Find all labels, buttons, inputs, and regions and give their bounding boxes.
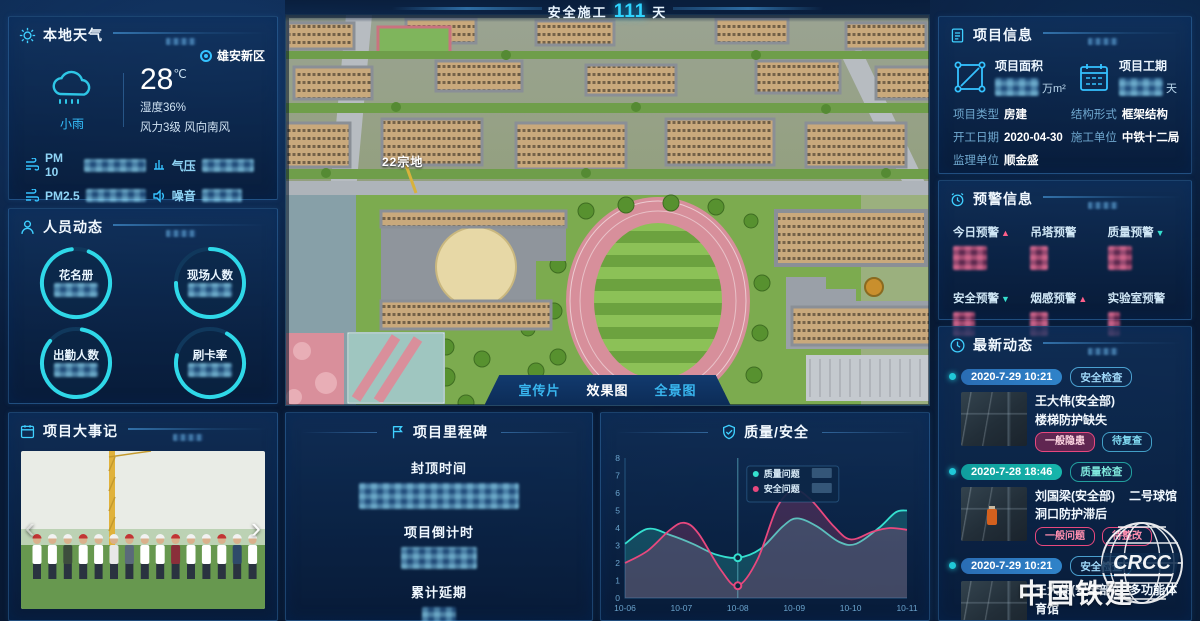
- warning-crane: 吊塔预警: [1030, 223, 1103, 275]
- quality-safety-panel: 质量/安全 01234567810-0610-0710-0810-0910-10…: [600, 412, 930, 621]
- svg-text:5: 5: [615, 506, 620, 516]
- carousel-prev-button[interactable]: ‹: [25, 514, 35, 544]
- air-waves-icon: [25, 189, 39, 203]
- svg-text:4: 4: [615, 523, 620, 533]
- news-item[interactable]: 2020-7-29 10:21 安全检查 王大伟(安全部)多功能体育馆 楼梯防护…: [947, 552, 1185, 621]
- news-issue: 洞口防护滞后: [1035, 505, 1177, 524]
- redacted-value: [953, 246, 987, 270]
- redacted-value: [1119, 78, 1163, 96]
- speaker-icon: [152, 189, 166, 203]
- redacted-value: [1030, 246, 1048, 270]
- calendar-note-icon: [19, 423, 36, 440]
- ring-swipe-rate: 刷卡率: [168, 325, 252, 399]
- news-location: 二号球馆: [1129, 489, 1177, 503]
- quality-safety-chart: 01234567810-0610-0710-0810-0910-1010-11质…: [601, 446, 921, 621]
- deco-mosaic: [166, 230, 196, 237]
- banner-suffix: 天: [652, 2, 667, 21]
- news-status-tag: 待复查: [1102, 432, 1152, 452]
- redacted-value: [188, 363, 232, 377]
- gauge-icon: [152, 158, 166, 172]
- svg-text:8: 8: [615, 453, 620, 463]
- clock-icon: [949, 337, 966, 354]
- weather-condition: 小雨: [37, 115, 107, 132]
- region-label: 雄安新区: [217, 47, 265, 64]
- redacted-value: [86, 189, 146, 202]
- divider: [123, 73, 124, 127]
- metric-pm25: PM2.5: [25, 187, 146, 204]
- document-icon: [949, 27, 966, 44]
- news-photo: [961, 581, 1027, 621]
- ring-onsite: 现场人数: [168, 245, 252, 319]
- news-status-tag: 一般隐患: [1035, 432, 1095, 452]
- svg-text:质量问题: 质量问题: [764, 468, 801, 479]
- warnings-panel: 预警信息 今日预警▲ 吊塔预警 质量预警▼ 安全预警▼ 烟感预警▲ 实验室预警: [938, 180, 1192, 320]
- news-issue: 楼梯防护缺失: [1035, 411, 1152, 430]
- alarm-icon: [949, 191, 966, 208]
- carousel-next-button[interactable]: ›: [251, 514, 261, 544]
- news-photo: [961, 487, 1027, 541]
- svg-text:10-06: 10-06: [614, 603, 636, 613]
- milestone-label: 累计延期: [286, 582, 592, 601]
- news-date-badge: 2020-7-28 18:46: [961, 464, 1062, 480]
- deco-mosaic: [1088, 202, 1118, 209]
- wind: 风力3级 风向南风: [140, 119, 230, 135]
- tab-promo-video[interactable]: 宣传片: [518, 380, 560, 399]
- region-button[interactable]: 雄安新区: [200, 47, 265, 64]
- calendar-icon: [1077, 60, 1111, 94]
- news-type-tag: 安全检查: [1070, 367, 1132, 387]
- panel-title: 项目里程碑: [413, 422, 488, 442]
- group-photo: [21, 451, 265, 609]
- news-status-tag: 一般问题: [1035, 527, 1095, 547]
- news-type-tag: 安全检查: [1070, 556, 1132, 576]
- metric-pm10: PM 10: [25, 151, 146, 179]
- deco-mosaic: [1088, 348, 1118, 355]
- panel-title: 预警信息: [973, 189, 1033, 209]
- field-project-type: 项目类型房建: [953, 106, 1063, 122]
- field-contractor: 施工单位中铁十二局: [1071, 129, 1180, 145]
- news-date-badge: 2020-7-29 10:21: [961, 369, 1062, 385]
- redacted-value: [54, 283, 98, 297]
- svg-text:6: 6: [615, 488, 620, 498]
- news-item[interactable]: 2020-7-28 18:46 质量检查 刘国梁(安全部)二号球馆 洞口防护滞后…: [947, 458, 1185, 553]
- milestone-panel: 项目里程碑 封顶时间 项目倒计时 累计延期: [285, 412, 593, 621]
- redacted-value: [84, 159, 146, 172]
- personnel-panel: 人员动态 花名册 现场人数 出勤人数: [8, 208, 278, 404]
- svg-text:10-08: 10-08: [727, 603, 749, 613]
- tab-panorama[interactable]: 全景图: [655, 380, 697, 399]
- field-supervisor: 监理单位顺金盛: [953, 152, 1063, 168]
- svg-text:安全问题: 安全问题: [764, 483, 801, 494]
- metric-noise: 噪音: [152, 187, 267, 204]
- event-photo: ‹ ›: [21, 451, 265, 609]
- temperature: 28℃: [140, 65, 230, 95]
- milestone-label: 项目倒计时: [286, 522, 592, 541]
- safe-construction-banner: 安全施工 111 天: [285, 0, 930, 22]
- svg-text:10-07: 10-07: [671, 603, 693, 613]
- flag-icon: [390, 424, 406, 440]
- site-render: [286, 15, 930, 406]
- rain-cloud-icon: [46, 68, 98, 108]
- svg-text:10-11: 10-11: [896, 603, 917, 613]
- warning-quality: 质量预警▼: [1108, 223, 1181, 275]
- person-icon: [19, 219, 36, 236]
- site-3d-view: 22宗地 宣传片 效果图 全景图: [285, 14, 930, 406]
- deco-mosaic: [1088, 38, 1118, 45]
- redacted-value: [202, 189, 242, 202]
- news-item[interactable]: 2020-7-29 10:21 安全检查 王大伟(安全部) 楼梯防护缺失 一般隐…: [947, 363, 1185, 458]
- shield-check-icon: [721, 424, 737, 440]
- redacted-value: [188, 283, 232, 297]
- project-milestones-panel: 项目大事记 ‹ ›: [8, 412, 278, 621]
- panel-title: 人员动态: [43, 217, 103, 237]
- panel-title: 质量/安全: [744, 422, 809, 442]
- panel-title: 项目大事记: [43, 421, 118, 441]
- air-waves-icon: [25, 158, 39, 172]
- latest-updates-panel: 最新动态 2020-7-29 10:21 安全检查 王大伟(安全部) 楼梯防护缺…: [938, 326, 1192, 621]
- svg-text:1: 1: [615, 576, 620, 586]
- news-person: 刘国梁(安全部): [1035, 489, 1115, 503]
- svg-text:10-09: 10-09: [783, 603, 805, 613]
- panel-title: 本地天气: [43, 25, 103, 45]
- stat-project-area: 项目面积 万m²: [953, 57, 1066, 96]
- svg-text:3: 3: [615, 541, 620, 551]
- deco-mosaic: [166, 38, 196, 45]
- svg-text:10-10: 10-10: [840, 603, 862, 613]
- redacted-value: [359, 483, 519, 509]
- banner-days-count: 111: [614, 2, 647, 21]
- news-photo: [961, 392, 1027, 446]
- project-info-panel: 项目信息 项目面积 万m² 项目工期 天: [938, 16, 1192, 174]
- scene-view-tabs: 宣传片 效果图 全景图: [484, 375, 730, 405]
- redacted-value: [1108, 246, 1132, 270]
- location-target-icon: [200, 50, 212, 62]
- weather-current: 小雨 28℃ 湿度36% 风力3级 风向南风: [37, 65, 277, 135]
- news-person: 王大伟(安全部): [1035, 394, 1115, 408]
- tab-rendering[interactable]: 效果图: [586, 380, 628, 399]
- land-parcel-label: 22宗地: [382, 153, 423, 170]
- redacted-value: [401, 547, 477, 569]
- metric-pressure: 气压: [152, 151, 267, 179]
- redacted-value: [995, 78, 1039, 96]
- panel-title: 最新动态: [973, 335, 1033, 355]
- news-type-tag: 质量检查: [1070, 462, 1132, 482]
- field-start-date: 开工日期2020-04-30: [953, 129, 1063, 145]
- svg-text:2: 2: [615, 558, 620, 568]
- news-status-tag: 待整改: [1102, 527, 1152, 547]
- milestone-label: 封顶时间: [286, 458, 592, 477]
- ring-roster: 花名册: [34, 245, 118, 319]
- svg-text:0: 0: [615, 593, 620, 603]
- ring-attendance: 出勤人数: [34, 325, 118, 399]
- stat-project-duration: 项目工期 天: [1077, 57, 1177, 96]
- humidity: 湿度36%: [140, 99, 230, 115]
- local-weather-panel: 本地天气 雄安新区 小雨 28℃ 湿度36% 风力3级 风向南风 PM 10: [8, 16, 278, 200]
- area-measure-icon: [953, 60, 987, 94]
- banner-prefix: 安全施工: [548, 2, 608, 21]
- redacted-value: [422, 607, 456, 621]
- warning-today: 今日预警▲: [953, 223, 1026, 275]
- news-date-badge: 2020-7-29 10:21: [961, 558, 1062, 574]
- field-structure: 结构形式框架结构: [1071, 106, 1180, 122]
- news-person: 王大伟(安全部): [1035, 583, 1115, 597]
- panel-title: 项目信息: [973, 25, 1033, 45]
- deco-mosaic: [173, 434, 203, 441]
- sun-icon: [19, 27, 36, 44]
- svg-text:7: 7: [615, 471, 620, 481]
- redacted-value: [54, 363, 98, 377]
- redacted-value: [202, 159, 254, 172]
